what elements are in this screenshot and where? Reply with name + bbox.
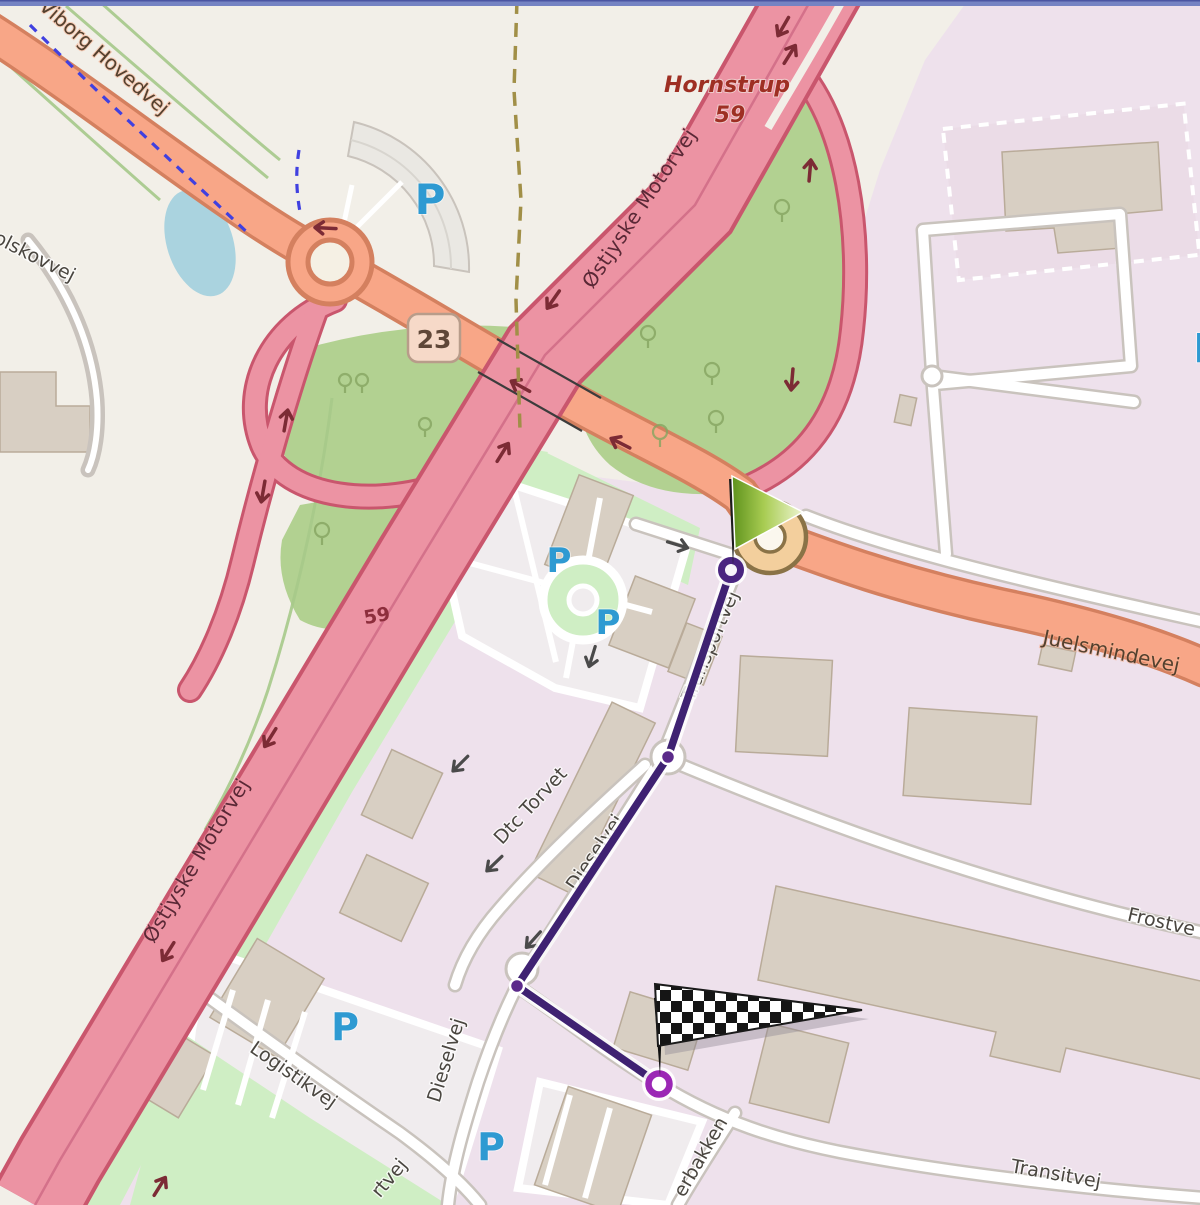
window-top-bar	[0, 0, 1200, 6]
map-canvas[interactable]: Viborg Hovedvej olskovvej Hornstrup 59 Ø…	[0, 0, 1200, 1205]
route-end-node[interactable]	[649, 1074, 670, 1095]
parking-icon: P	[596, 603, 621, 643]
route-node	[661, 750, 675, 764]
roundabout-west	[288, 220, 372, 304]
place-label-hornstrup-ref: 59	[715, 103, 746, 128]
parking-icon: P	[415, 175, 446, 224]
parking-icon: P	[547, 541, 572, 581]
road-label-motorway-ref: 59	[362, 603, 392, 629]
turning-circle	[922, 366, 942, 386]
route-start-node[interactable]	[722, 561, 741, 580]
svg-text:23: 23	[417, 325, 452, 354]
parking-icon: P	[477, 1125, 505, 1169]
parking-icon: P	[331, 1005, 359, 1049]
place-label-hornstrup: Hornstrup	[664, 73, 790, 98]
route-node	[510, 979, 524, 993]
exit-shield-23: 23	[408, 314, 460, 362]
parking-icon-clipped: P	[1193, 326, 1200, 372]
map-container: Viborg Hovedvej olskovvej Hornstrup 59 Ø…	[0, 0, 1200, 1205]
